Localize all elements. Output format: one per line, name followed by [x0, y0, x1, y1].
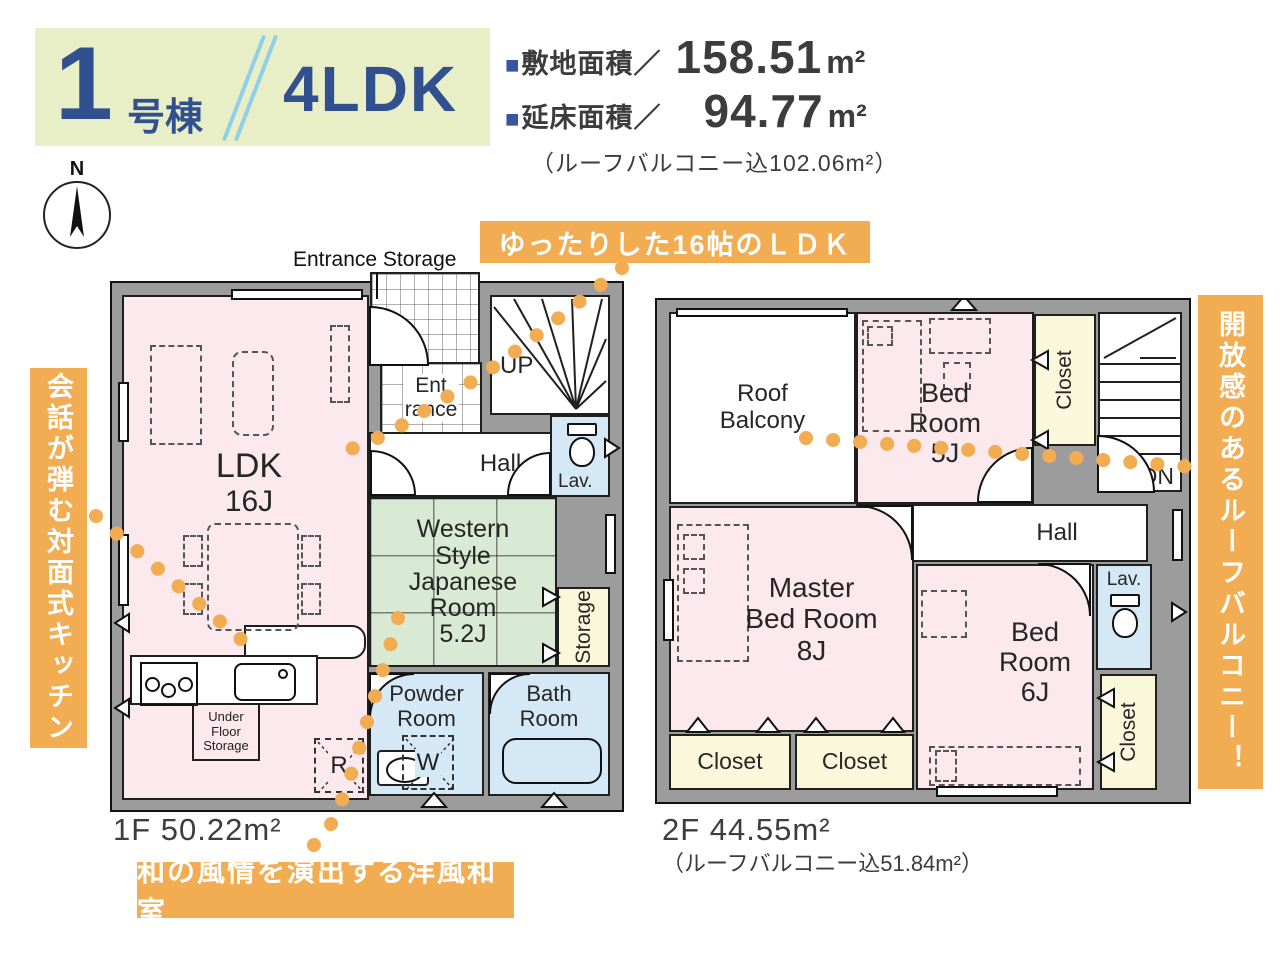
entrance-storage	[370, 272, 480, 364]
chair-icon	[301, 583, 321, 615]
floor1-caption: 1F 50.22m²	[113, 812, 282, 848]
entrance-storage-label: Entrance Storage	[293, 248, 456, 272]
chair-icon	[301, 535, 321, 567]
room-lavatory-1f: Lav.	[550, 415, 610, 497]
hall-2f-label: Hall	[1036, 520, 1077, 547]
building-suffix: 号棟	[127, 86, 203, 141]
floor-area-value: 94.77	[704, 84, 824, 138]
slash-decoration	[222, 35, 266, 141]
sofa-icon	[150, 345, 202, 445]
plan-type: 4LDK	[283, 52, 458, 126]
master-bedroom-label: Master Bed Room 8J	[745, 572, 877, 666]
room-lavatory-2f: Lav.	[1096, 564, 1152, 670]
pillow-icon	[867, 326, 893, 346]
stairs-up-label: UP	[500, 353, 533, 380]
callout-japanese-room: 和の風情を演出する洋風和室	[137, 862, 514, 918]
floor2-plan: RoofBalcony Bed Room 5J Closet DN Hall	[655, 298, 1191, 804]
under-floor-storage-label: Under Floor Storage	[203, 710, 249, 755]
floor1-plan: LDK 16J Entrance UP Hall Lav.	[110, 281, 624, 812]
powder-room-label: PowderRoom	[371, 682, 482, 731]
closet-label: Closet	[697, 749, 762, 775]
room-entrance: Entrance	[380, 362, 482, 434]
room-bath: BathRoom	[488, 672, 610, 796]
building-badge: 1 号棟 4LDK	[35, 28, 490, 146]
site-area-label: 敷地面積／	[522, 42, 662, 81]
room-closet-2f-left: Closet	[669, 734, 791, 790]
ldk-label: LDK 16J	[179, 447, 319, 519]
closet-label: Closet	[1117, 702, 1141, 762]
building-number: 1	[55, 32, 113, 136]
dining-table-icon	[207, 523, 299, 631]
area-figures: ■ 敷地面積／ 158.51 m² ■ 延床面積／ 94.77 m² （ルーフバ…	[505, 30, 975, 178]
desk-icon	[929, 318, 991, 354]
floorplan-flyer: 1 号棟 4LDK ■ 敷地面積／ 158.51 m² ■ 延床面積／ 94.7…	[0, 0, 1280, 960]
floor-area-label: 延床面積／	[522, 96, 662, 135]
bedroom-5j-label: Bed Room 5J	[909, 378, 981, 469]
balcony-area-note: （ルーフバルコニー込102.06m²）	[531, 144, 975, 178]
bedroom-6j-label: Bed Room 6J	[999, 617, 1071, 708]
refrigerator-space: R	[314, 738, 364, 793]
kitchen-counter	[130, 655, 318, 705]
pillow-icon	[683, 568, 705, 594]
pillow-icon	[683, 534, 705, 560]
lavatory-label: Lav.	[558, 471, 593, 493]
floor-area-row: ■ 延床面積／ 94.77 m²	[505, 84, 975, 138]
toilet-icon	[1110, 594, 1140, 638]
refrigerator-label: R	[328, 752, 349, 780]
room-closet-2f-mid: Closet	[795, 734, 914, 790]
kitchen-sink-icon	[234, 663, 296, 701]
japanese-room-label: Western Style Japanese Room 5.2J	[409, 516, 517, 647]
hall-label: Hall	[480, 451, 521, 478]
toilet-icon	[567, 423, 597, 467]
entrance-label: Entrance	[403, 374, 460, 421]
stove-icon	[140, 662, 198, 706]
callout-roof-balcony: 開放感のあるルーフバルコニー！	[1198, 295, 1263, 789]
closet-label: Closet	[1053, 350, 1077, 410]
room-storage-1f: Storage	[557, 587, 610, 667]
closet-label: Closet	[822, 749, 887, 775]
stairs-up: UP	[490, 295, 610, 415]
pillow-icon	[935, 750, 957, 782]
under-floor-storage: Under Floor Storage	[192, 703, 260, 761]
tv-board-icon	[330, 325, 350, 403]
bathtub-icon	[502, 738, 602, 784]
callout-kitchen: 会話が弾む対面式キッチン	[30, 368, 87, 748]
room-roof-balcony: RoofBalcony	[669, 312, 856, 504]
floor2-caption: 2F 44.55m²	[662, 812, 831, 848]
bullet-icon: ■	[505, 106, 520, 134]
floor-area-unit: m²	[828, 98, 867, 135]
chair-icon	[183, 535, 203, 567]
compass-north-label: N	[42, 158, 112, 181]
floor2-balcony-note: （ルーフバルコニー込51.84m²）	[662, 846, 983, 878]
roof-balcony-label: RoofBalcony	[720, 381, 805, 435]
room-closet-2f-top: Closet	[1034, 314, 1096, 446]
washer-label: W	[415, 749, 442, 777]
chair-icon	[183, 583, 203, 615]
compass: N	[42, 158, 112, 249]
site-area-row: ■ 敷地面積／ 158.51 m²	[505, 30, 975, 84]
stairs-down-label: DN	[1139, 464, 1176, 490]
storage-label: Storage	[572, 590, 596, 664]
coffee-table-icon	[232, 351, 274, 436]
compass-icon	[43, 181, 111, 249]
washer-space: W	[402, 735, 454, 790]
lavatory-2f-label: Lav.	[1107, 569, 1142, 591]
room-hall-1f: Hall	[369, 432, 552, 497]
entrance-storage-pointer	[376, 272, 378, 299]
room-closet-2f-right: Closet	[1100, 674, 1157, 790]
bullet-icon: ■	[505, 52, 520, 80]
stairs-down: DN	[1098, 312, 1182, 492]
callout-ldk: ゆったりした16帖のＬＤＫ	[480, 221, 870, 263]
site-area-value: 158.51	[676, 30, 823, 84]
bath-room-label: BathRoom	[490, 682, 608, 731]
desk-icon	[921, 590, 967, 638]
room-japanese: Western Style Japanese Room 5.2J	[369, 497, 557, 667]
site-area-unit: m²	[826, 44, 865, 81]
